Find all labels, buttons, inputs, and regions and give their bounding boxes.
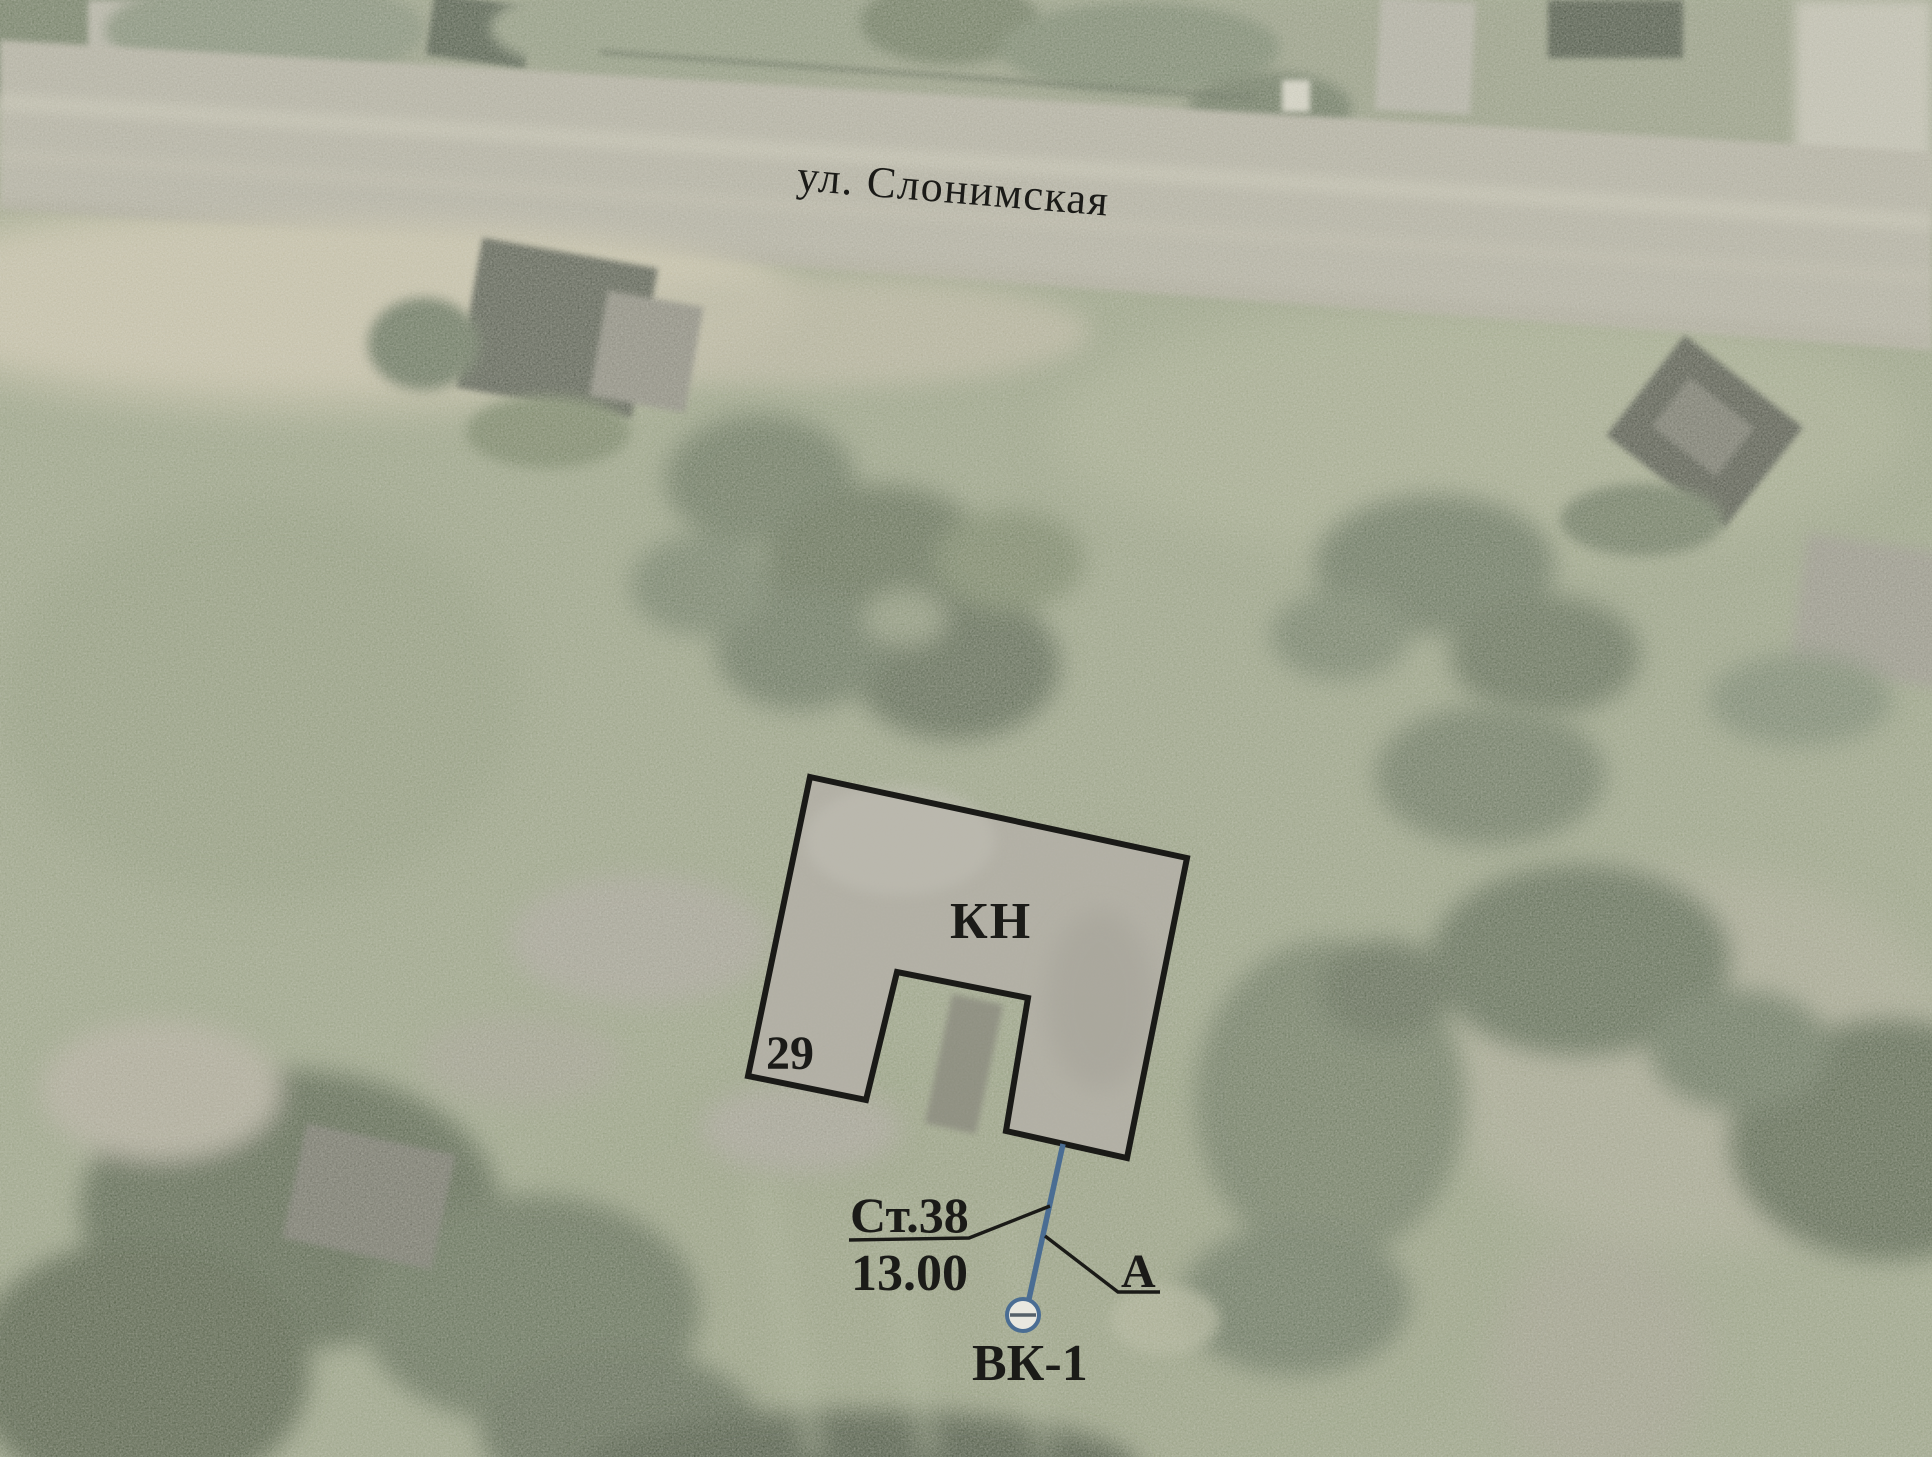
well-id-label: ВК-1 xyxy=(972,1335,1088,1392)
site-plan-map: ул. Слонимская КН 29 Ст.38 13.00 А ВК-1 xyxy=(0,0,1932,1457)
pipe-station-label: Ст.38 xyxy=(850,1187,969,1243)
pipe-length-label: 13.00 xyxy=(851,1245,968,1302)
point-a-label: А xyxy=(1121,1245,1156,1298)
building-type-label: КН xyxy=(950,893,1032,950)
water-well-symbol xyxy=(1007,1299,1039,1331)
house-number-label: 29 xyxy=(766,1027,814,1080)
